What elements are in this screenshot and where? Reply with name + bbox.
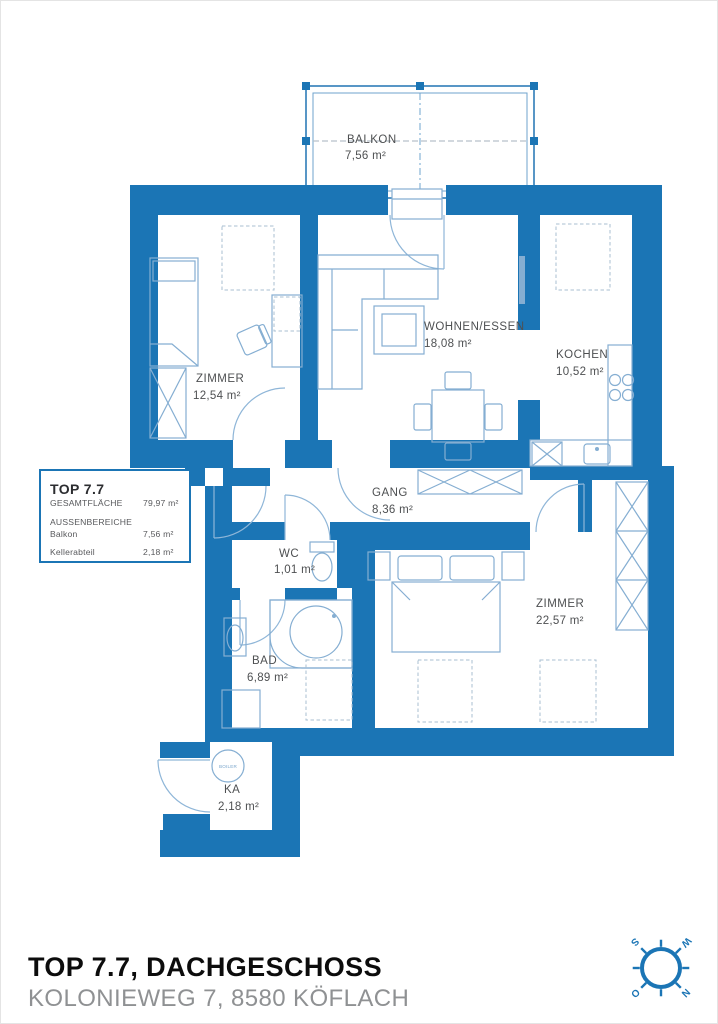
kitchen-counter xyxy=(608,345,632,466)
stove-burner xyxy=(610,375,621,386)
compass-east: O xyxy=(628,986,641,999)
balcony-row-value: 7,56 m² xyxy=(143,529,174,539)
room-label-ka: KA 2,18 m² xyxy=(218,784,259,813)
dashed-furniture xyxy=(556,224,610,290)
balcony-area: 7,56 m² xyxy=(345,150,386,162)
tv xyxy=(519,256,525,304)
compass-rose-icon: N O S W xyxy=(602,909,718,1024)
dashed-furniture xyxy=(306,660,352,720)
dining-table xyxy=(432,390,484,442)
chair xyxy=(445,372,471,389)
walls xyxy=(130,185,674,857)
corner-sofa xyxy=(318,255,438,389)
info-box: TOP 7.7 GESAMTFLÄCHE 79,97 m² AUSSENBERE… xyxy=(40,470,190,562)
plan-title: TOP 7.7, DACHGESCHOSS xyxy=(28,952,382,982)
balcony-label: BALKON xyxy=(347,134,397,146)
room-label-wohnen-essen: WOHNEN/ESSEN 18,08 m² xyxy=(424,321,525,350)
pillow xyxy=(450,556,494,580)
room-label-zimmer-right: ZIMMER 22,57 m² xyxy=(536,598,584,627)
stove-burner xyxy=(610,390,621,401)
total-area-value: 79,97 m² xyxy=(143,498,179,508)
svg-text:WC: WC xyxy=(279,548,299,560)
pillow xyxy=(398,556,442,580)
chair xyxy=(414,404,431,430)
cellar-row-label: Kellerabteil xyxy=(50,547,95,557)
footer: TOP 7.7, DACHGESCHOSS KOLONIEWEG 7, 8580… xyxy=(28,952,409,1012)
furniture-zimmer-left xyxy=(150,226,302,438)
balcony-door xyxy=(390,189,444,269)
svg-text:ZIMMER: ZIMMER xyxy=(536,598,584,610)
room-label-kochen: KOCHEN 10,52 m² xyxy=(556,349,608,378)
pillow xyxy=(153,261,195,281)
wardrobe xyxy=(418,470,522,494)
dashed-furniture xyxy=(222,226,274,290)
svg-text:8,36 m²: 8,36 m² xyxy=(372,504,413,516)
nightstand xyxy=(502,552,524,580)
door-ka xyxy=(158,760,210,812)
furniture-wohnen xyxy=(318,255,525,460)
chair xyxy=(485,404,502,430)
compass-south: S xyxy=(628,935,641,948)
toilet-tank xyxy=(310,542,334,552)
svg-text:WOHNEN/ESSEN: WOHNEN/ESSEN xyxy=(424,321,525,333)
door-bad xyxy=(240,600,285,645)
boiler-label: BOILER xyxy=(219,764,238,769)
svg-text:18,08 m²: 18,08 m² xyxy=(424,338,472,350)
info-box-title: TOP 7.7 xyxy=(50,481,104,497)
chair xyxy=(236,322,272,356)
furniture-kochen xyxy=(530,224,634,466)
svg-text:10,52 m²: 10,52 m² xyxy=(556,366,604,378)
floor-plan-drawing: BALKON 7,56 m² xyxy=(0,0,718,1024)
svg-text:GANG: GANG xyxy=(372,487,408,499)
room-label-bad: BAD 6,89 m² xyxy=(247,655,288,684)
cellar-row-value: 2,18 m² xyxy=(143,547,174,557)
room-label-gang: GANG 8,36 m² xyxy=(372,487,413,516)
double-bed xyxy=(392,582,500,652)
svg-text:2,18 m²: 2,18 m² xyxy=(218,801,259,813)
dashed-furniture xyxy=(418,660,472,722)
dashed-furniture xyxy=(540,660,596,722)
svg-text:KA: KA xyxy=(224,784,240,796)
floor-plan-page: BALKON 7,56 m² xyxy=(0,0,718,1024)
balcony: BALKON 7,56 m² xyxy=(302,82,538,198)
room-label-zimmer-left: ZIMMER 12,54 m² xyxy=(193,373,244,402)
svg-text:6,89 m²: 6,89 m² xyxy=(247,672,288,684)
svg-text:22,57 m²: 22,57 m² xyxy=(536,615,584,627)
furniture-bad xyxy=(222,600,352,728)
furniture-gang xyxy=(418,470,522,494)
compass-north: N xyxy=(679,986,692,999)
door-zimmer-right xyxy=(536,484,584,532)
furniture-zimmer-right xyxy=(368,482,648,722)
svg-text:1,01 m²: 1,01 m² xyxy=(274,564,315,576)
furniture-ka: BOILER xyxy=(212,750,244,782)
svg-text:ZIMMER: ZIMMER xyxy=(196,373,244,385)
compass-west: W xyxy=(678,935,693,950)
total-area-label: GESAMTFLÄCHE xyxy=(50,498,123,508)
svg-text:BAD: BAD xyxy=(252,655,277,667)
svg-text:KOCHEN: KOCHEN xyxy=(556,349,608,361)
door-zimmer-left xyxy=(233,388,285,440)
door-wc xyxy=(285,495,330,540)
room-label-wc: WC 1,01 m² xyxy=(274,548,315,576)
svg-text:12,54 m²: 12,54 m² xyxy=(193,390,241,402)
outdoor-label: AUSSENBEREICHE xyxy=(50,517,132,527)
balcony-row-label: Balkon xyxy=(50,529,77,539)
plan-address: KOLONIEWEG 7, 8580 KÖFLACH xyxy=(28,985,409,1012)
